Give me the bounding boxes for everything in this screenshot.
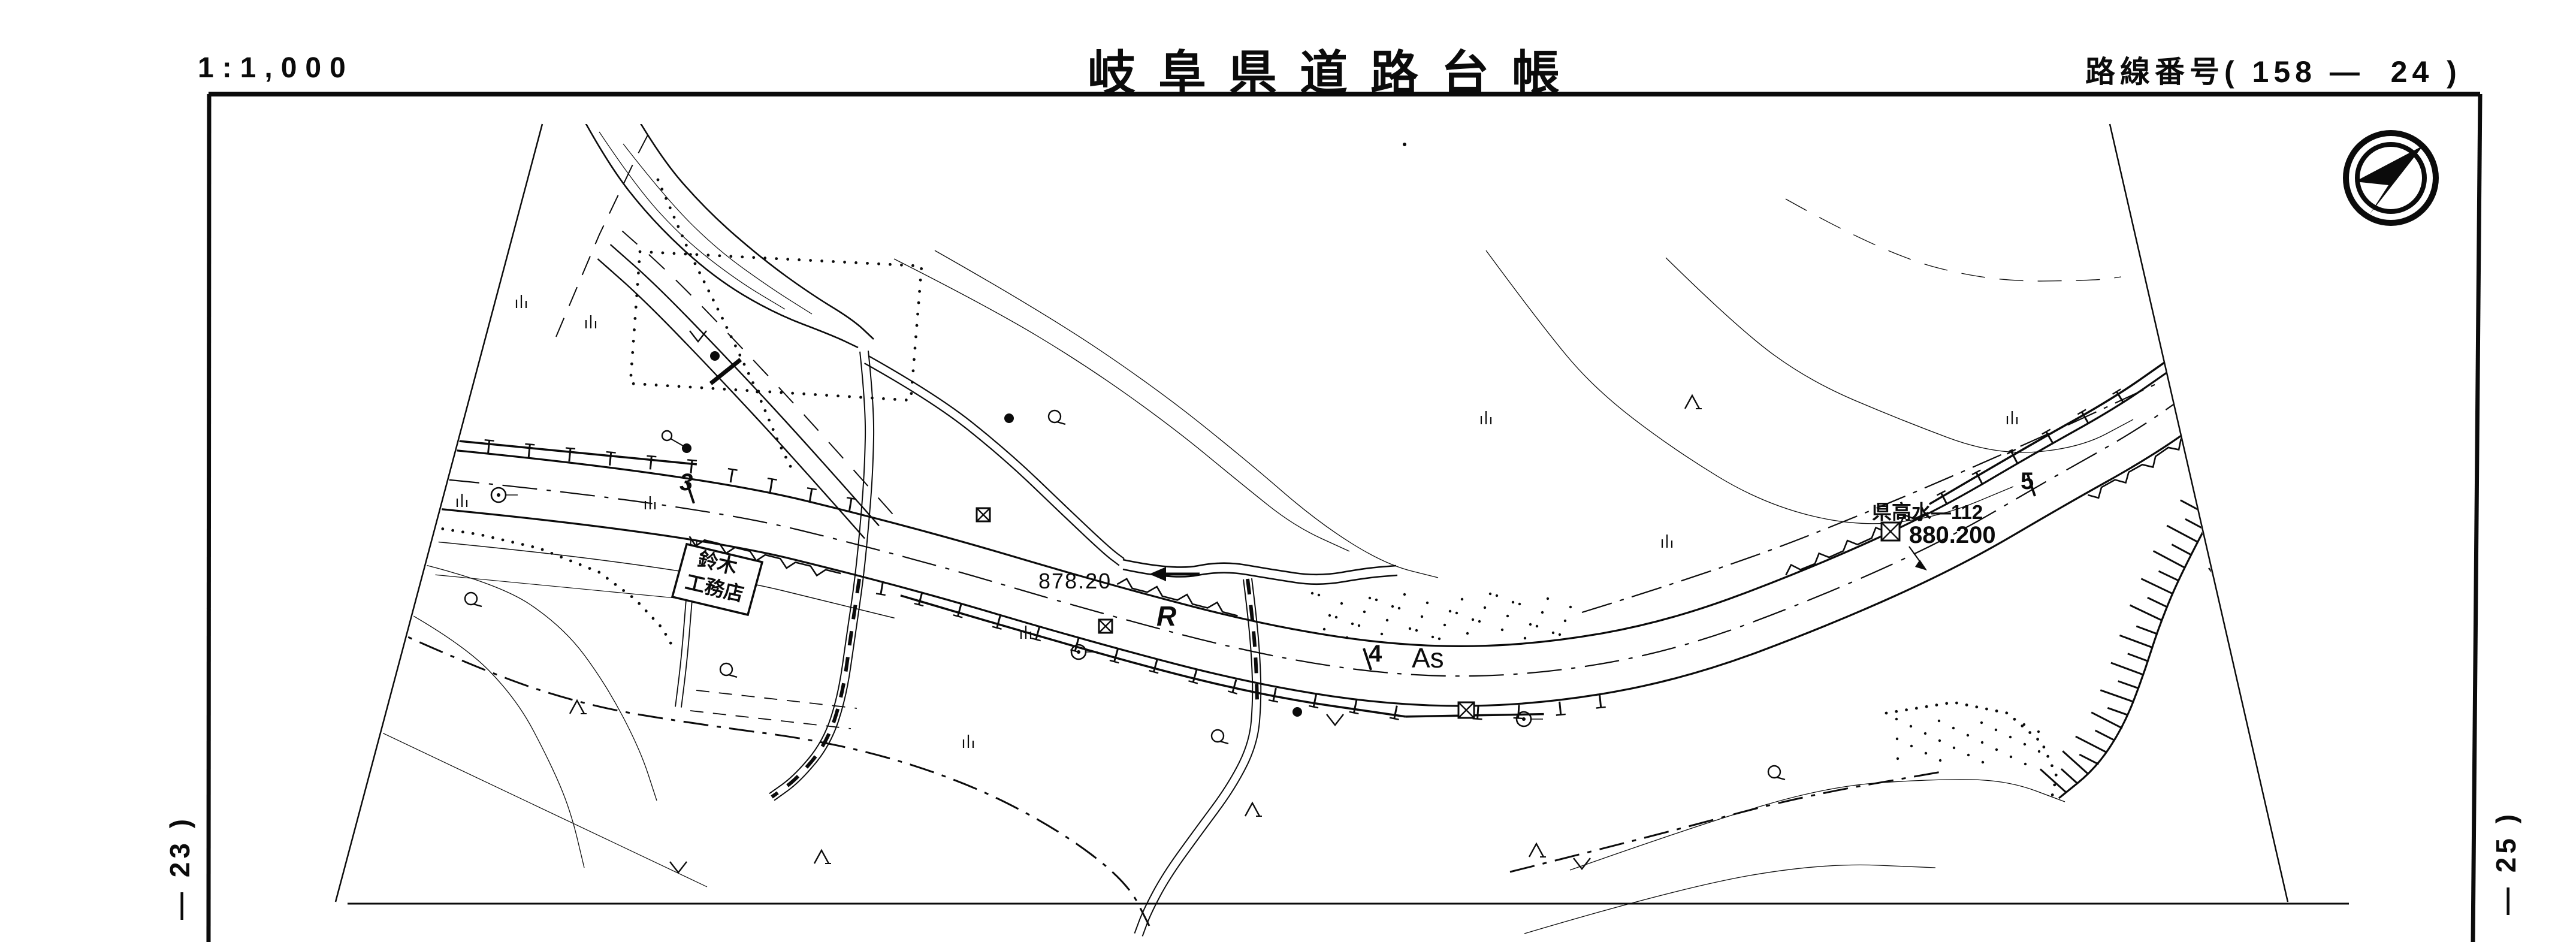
label-retaining-wall: R	[1156, 600, 1176, 632]
north-arrow-icon	[2346, 133, 2436, 223]
label-benchmark-name: 県高水—112	[1872, 501, 1983, 523]
cliff-hatching	[2040, 500, 2211, 798]
label-station-4: 4	[1369, 641, 1382, 667]
label-benchmark-elevation: 880.200	[1909, 522, 1996, 548]
contour-lines	[397, 199, 2133, 934]
dotted-lines	[234, 179, 2058, 796]
stream-center-channel	[865, 356, 1397, 937]
label-spot-elevation: 878.20	[1038, 569, 1112, 593]
road-ledger-sheet: 1:1,000 岐阜県道路台帳 路線番号( 158 — 24 ) — 23 ) …	[0, 0, 2576, 942]
branch-road	[597, 231, 892, 539]
match-line-right	[2110, 124, 2288, 902]
sheet-frame	[209, 94, 2480, 942]
match-line-left	[336, 124, 542, 902]
label-station-3: 3	[680, 469, 693, 496]
label-station-5: 5	[2021, 468, 2034, 494]
label-pavement-type: As	[1412, 642, 1444, 674]
map-canvas: 878.20 R 3 4 5 As 県高水—112 880.200 鈴木 工務店	[0, 0, 2576, 942]
parcel-line	[360, 722, 707, 887]
stream-braided	[574, 102, 874, 801]
map-labels: 878.20 R 3 4 5 As 県高水—112 880.200 鈴木 工務店	[680, 468, 2034, 674]
